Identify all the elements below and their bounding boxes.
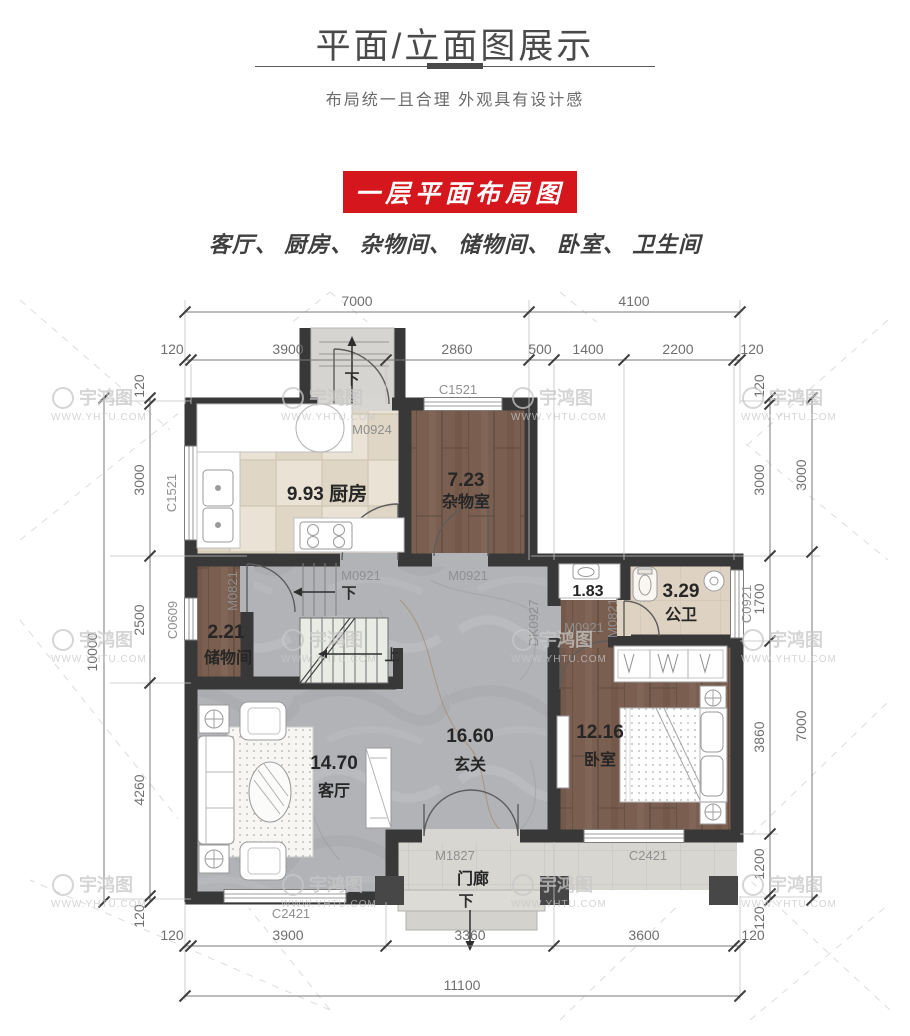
label-up-stair: 上 [384, 647, 399, 664]
tag-c1521-left: C1521 [164, 474, 179, 512]
dim-bottom-3600: 3600 [628, 927, 659, 943]
sofa [198, 736, 234, 844]
label-kitchen: 9.93 厨房 [287, 482, 367, 505]
label-wash-area: 1.83 [572, 583, 603, 600]
pillow-2 [701, 756, 723, 796]
dim-right-3000: 3000 [751, 464, 767, 495]
label-living-name: 客厅 [318, 781, 350, 800]
watermark-name: 宇鸿图 [79, 874, 133, 895]
watermark-url: WWW.YHTU.COM [741, 899, 837, 910]
dim-top2-120b: 120 [740, 341, 764, 357]
dim-top2-2200: 2200 [662, 341, 693, 357]
label-down-stair: 下 [341, 585, 356, 602]
label-storage-area: 2.21 [208, 622, 245, 643]
label-sundry-name: 杂物室 [442, 492, 490, 511]
watermark-url: WWW.YHTU.COM [51, 412, 147, 423]
tag-c0609: C0609 [165, 601, 180, 639]
dim-right-120a: 120 [751, 374, 767, 398]
tag-m0821-bath: M0821 [605, 598, 620, 638]
dim-left-3000: 3000 [131, 464, 147, 495]
label-down-porch: 下 [458, 893, 473, 910]
watermark-name: 宇鸿图 [539, 874, 593, 895]
watermark-name: 宇鸿图 [769, 874, 823, 895]
dim-left-120a: 120 [131, 374, 147, 398]
window-c0609-left [185, 598, 198, 640]
dim-top2-500: 500 [528, 341, 552, 357]
watermark-url: WWW.YHTU.COM [51, 654, 147, 665]
label-bath-name: 公卫 [665, 606, 697, 624]
tag-m1827: M1827 [435, 848, 475, 863]
window-c1521-top [424, 398, 502, 411]
dim-left-2500: 2500 [131, 604, 147, 635]
dim-bottom-120b: 120 [741, 927, 765, 943]
dim-bottom-3900: 3900 [272, 927, 303, 943]
label-bedroom-area: 12.16 [576, 722, 624, 743]
label-porch: 门廊 [457, 869, 489, 888]
label-storage-name: 储物间 [203, 648, 252, 667]
watermark-url: WWW.YHTU.COM [741, 412, 837, 423]
dim-bottom-3360: 3360 [454, 927, 485, 943]
tag-m0921-kitchen: M0921 [341, 568, 381, 583]
watermark-name: 宇鸿图 [309, 874, 363, 895]
dim-right-1700: 1700 [751, 583, 767, 614]
watermark-name: 宇鸿图 [79, 387, 133, 408]
floor-plan: 9.93 厨房 7.23 杂物室 2.21 储物间 16.60 玄关 14.70… [0, 0, 910, 1036]
dim-top-4100: 4100 [618, 293, 649, 309]
watermark-url: WWW.YHTU.COM [281, 654, 377, 665]
dim-top2-2860: 2860 [441, 341, 472, 357]
dim-top2-1400: 1400 [572, 341, 603, 357]
window-c2421-bedroom [584, 830, 684, 843]
dim-bottom-120a: 120 [160, 927, 184, 943]
dim-left-4260: 4260 [131, 774, 147, 805]
watermark-url: WWW.YHTU.COM [741, 654, 837, 665]
watermark-name: 宇鸿图 [769, 387, 823, 408]
label-hall-name: 玄关 [454, 755, 486, 774]
basin [704, 571, 724, 591]
label-living-area: 14.70 [310, 753, 358, 774]
watermark-name: 宇鸿图 [769, 629, 823, 650]
label-bath-area: 3.29 [663, 581, 700, 602]
dim-right-outer-7000: 7000 [793, 710, 809, 741]
watermark-name: 宇鸿图 [309, 387, 363, 408]
watermark-url: WWW.YHTU.COM [511, 899, 607, 910]
dim-top2-3900: 3900 [272, 341, 303, 357]
dim-right-outer-3000: 3000 [793, 459, 809, 490]
window-c1521-left [185, 446, 198, 540]
tag-m0921-sundry: M0921 [448, 568, 488, 583]
dim-right-3860: 3860 [751, 721, 767, 752]
label-down-exterior: 下 [344, 371, 359, 388]
dim-bottom-11100: 11100 [444, 977, 481, 993]
pillow-1 [701, 712, 723, 752]
watermark-url: WWW.YHTU.COM [511, 412, 607, 423]
watermark-url: WWW.YHTU.COM [281, 899, 377, 910]
bedroom-dresser [557, 716, 569, 788]
tag-m0924: M0924 [352, 422, 392, 437]
watermark-name: 宇鸿图 [539, 629, 593, 650]
watermark-name: 宇鸿图 [309, 629, 363, 650]
watermark-url: WWW.YHTU.COM [511, 654, 607, 665]
label-bedroom-name: 卧室 [584, 750, 616, 769]
dim-top-7000: 7000 [341, 293, 372, 309]
watermark-name: 宇鸿图 [539, 387, 593, 408]
tag-c1521-top: C1521 [439, 382, 477, 397]
watermark-url: WWW.YHTU.COM [51, 899, 147, 910]
dim-top2-120a: 120 [160, 341, 184, 357]
tag-m0821-storage: M0821 [225, 571, 240, 611]
tag-c2421-bedroom: C2421 [629, 848, 667, 863]
label-hall-area: 16.60 [446, 726, 494, 747]
watermark-url: WWW.YHTU.COM [281, 412, 377, 423]
label-sundry-area: 7.23 [448, 470, 485, 491]
watermark-name: 宇鸿图 [79, 629, 133, 650]
